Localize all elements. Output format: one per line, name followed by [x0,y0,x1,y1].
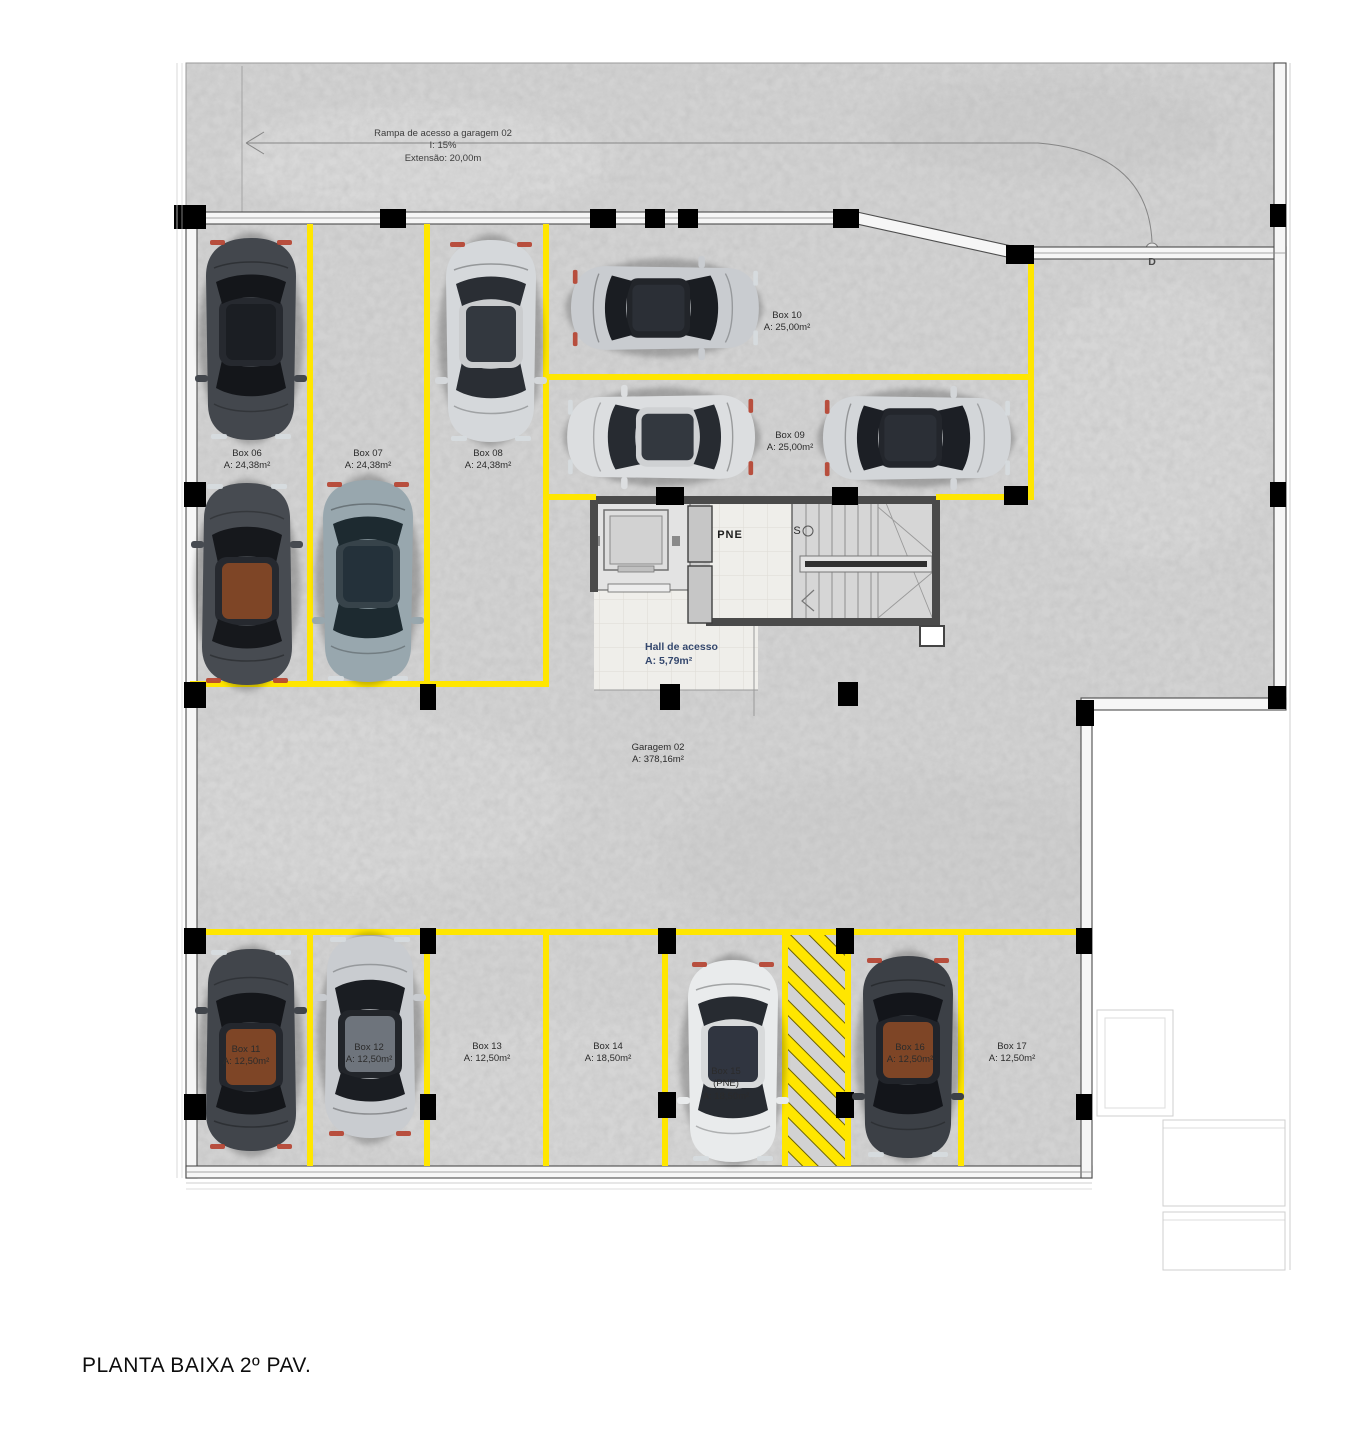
car-box12 [314,932,426,1144]
car-box06-b [191,479,303,691]
car-box09-b [817,386,1014,490]
no-parking-hatch [788,935,845,1166]
car-box16 [852,950,964,1162]
elevator [592,498,690,592]
car-box09-a [563,385,760,489]
car-box15 [677,954,789,1166]
floor-plan-page: Rampa de acesso a garagem 02 I: 15% Exte… [0,0,1367,1440]
car-box07 [312,474,424,686]
car-box10 [565,256,762,360]
car-box06-a [195,232,307,444]
floor-plan-svg [0,0,1367,1440]
car-box08 [435,234,547,446]
car-box11 [195,945,307,1157]
drawing-title: PLANTA BAIXA 2º PAV. [82,1354,311,1378]
staircase [792,503,940,622]
